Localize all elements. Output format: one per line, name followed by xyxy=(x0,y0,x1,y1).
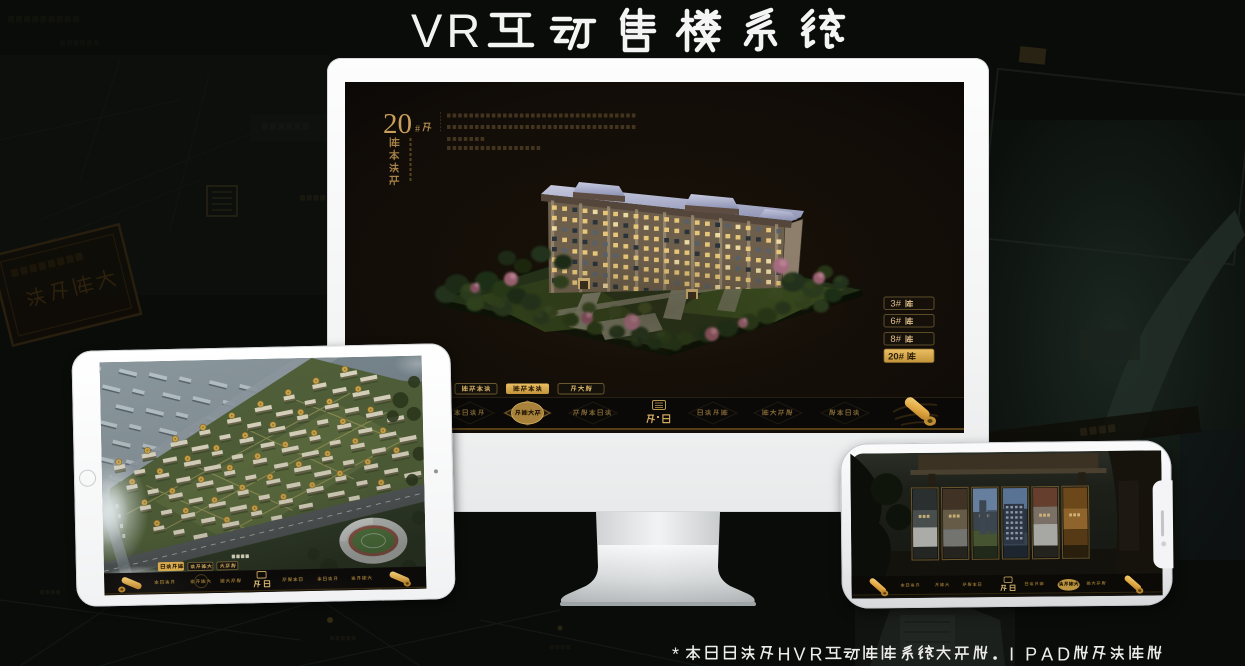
svg-text:P: P xyxy=(1025,645,1037,665)
svg-text:20#: 20# xyxy=(888,352,905,363)
svg-text:H: H xyxy=(778,645,791,665)
svg-text:3#: 3# xyxy=(890,299,901,310)
svg-text:A: A xyxy=(1041,645,1053,665)
svg-text:VR: VR xyxy=(411,4,484,57)
svg-text:R: R xyxy=(810,645,823,665)
svg-text:8#: 8# xyxy=(890,334,901,345)
svg-text:*: * xyxy=(672,645,679,665)
svg-text:V: V xyxy=(794,645,806,665)
svg-text:D: D xyxy=(1057,645,1070,665)
svg-text:I: I xyxy=(1009,645,1014,665)
svg-text:#: # xyxy=(415,124,420,135)
svg-text:20: 20 xyxy=(383,108,412,140)
svg-text:6#: 6# xyxy=(890,316,901,327)
